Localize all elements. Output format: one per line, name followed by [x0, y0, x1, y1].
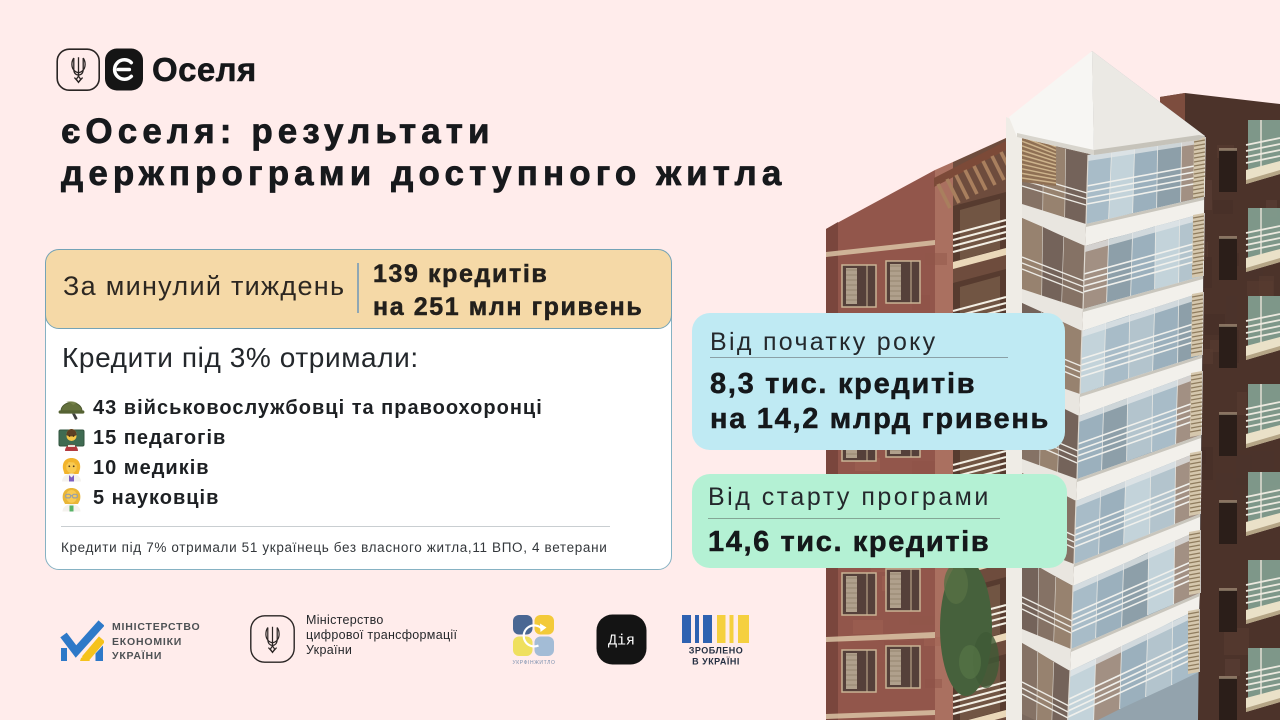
- svg-text:В УКРАЇНІ: В УКРАЇНІ: [692, 657, 740, 667]
- svg-text:Дія: Дія: [608, 633, 635, 650]
- svg-text:УКРФІНЖИТЛО: УКРФІНЖИТЛО: [512, 660, 555, 666]
- svg-text:ЗРОБЛЕНО: ЗРОБЛЕНО: [689, 646, 744, 656]
